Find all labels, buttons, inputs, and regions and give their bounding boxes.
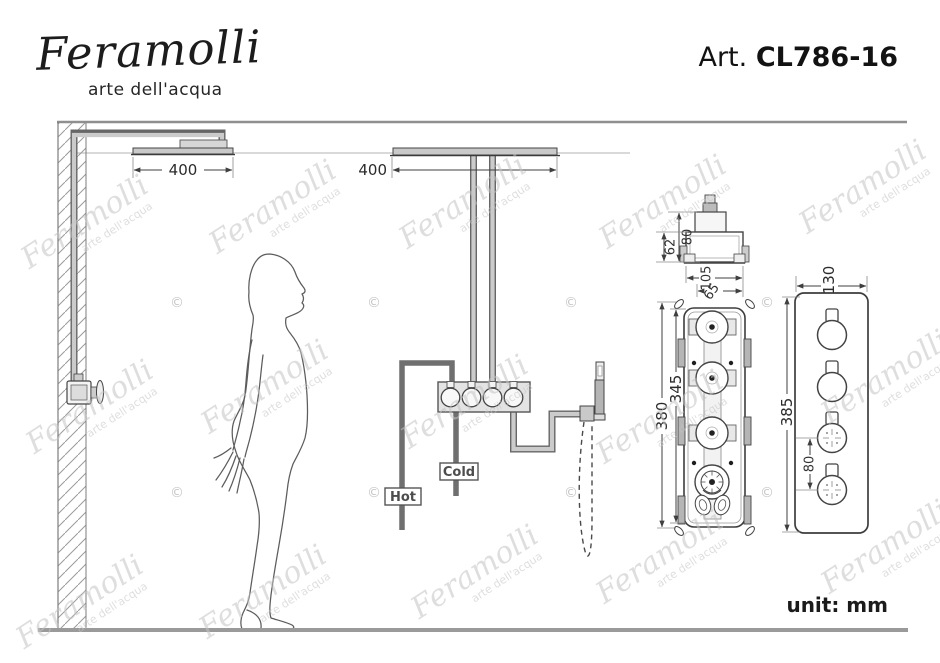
- dim-text-left-shower-width: 400: [169, 161, 198, 179]
- watermark: Feramolliarte dell'acqua: [19, 353, 166, 471]
- art-number: Art. CL786-16: [698, 42, 898, 73]
- watermark: Feramolliarte dell'acqua: [194, 333, 341, 451]
- dim-text-ceiling-shower-width: 400: [358, 161, 387, 179]
- watermark: Feramolliarte dell'acqua: [202, 153, 349, 271]
- watermark: Feramolliarte dell'acqua: [404, 518, 551, 636]
- art-number-code: CL786-16: [756, 42, 898, 73]
- hot-label: Hot: [385, 488, 421, 505]
- copyright-mark: ©: [564, 295, 578, 311]
- brand-logo: Feramolli: [35, 20, 262, 81]
- cold-label: Cold: [440, 463, 478, 480]
- dim-text-faceplate-width: 130: [820, 266, 838, 295]
- copyright-mark: ©: [760, 295, 774, 311]
- brand-tagline: arte dell'acqua: [88, 80, 223, 100]
- copyright-mark: ©: [367, 485, 381, 501]
- hand-shower-holder: [580, 406, 594, 421]
- dim-text-faceplate-height: 385: [778, 398, 796, 427]
- copyright-mark: ©: [564, 485, 578, 501]
- watermark: Feramolliarte dell'acqua: [392, 148, 539, 266]
- ceiling-shower-head: [390, 148, 560, 156]
- dim-left-shower-width: 400: [133, 157, 233, 179]
- watermark: Feramolliarte dell'acqua: [792, 133, 939, 251]
- copyright-mark: ©: [760, 485, 774, 501]
- copyright-mark: ©: [367, 295, 381, 311]
- cold-label-text: Cold: [443, 465, 475, 480]
- copyright-mark: ©: [170, 295, 184, 311]
- dim-text-handle-spacing: 80: [803, 456, 818, 473]
- hand-shower-pipe: [514, 412, 587, 449]
- wall-supply-pipe: [74, 133, 222, 388]
- hot-label-text: Hot: [390, 490, 416, 505]
- left-shower-head: [131, 140, 235, 155]
- dim-text-valve-top-body-height: 62: [664, 239, 679, 256]
- watermark: Feramolliarte dell'acqua: [192, 538, 339, 656]
- art-number-label: Art.: [698, 42, 747, 73]
- dim-text-valve-top-total-height: 80: [681, 229, 696, 246]
- dim-faceplate-width: 130: [796, 266, 867, 295]
- technical-drawing-page: 400 400: [0, 0, 940, 663]
- copyright-mark: ©: [170, 485, 184, 501]
- watermark: Feramolliarte dell'acqua: [14, 168, 161, 286]
